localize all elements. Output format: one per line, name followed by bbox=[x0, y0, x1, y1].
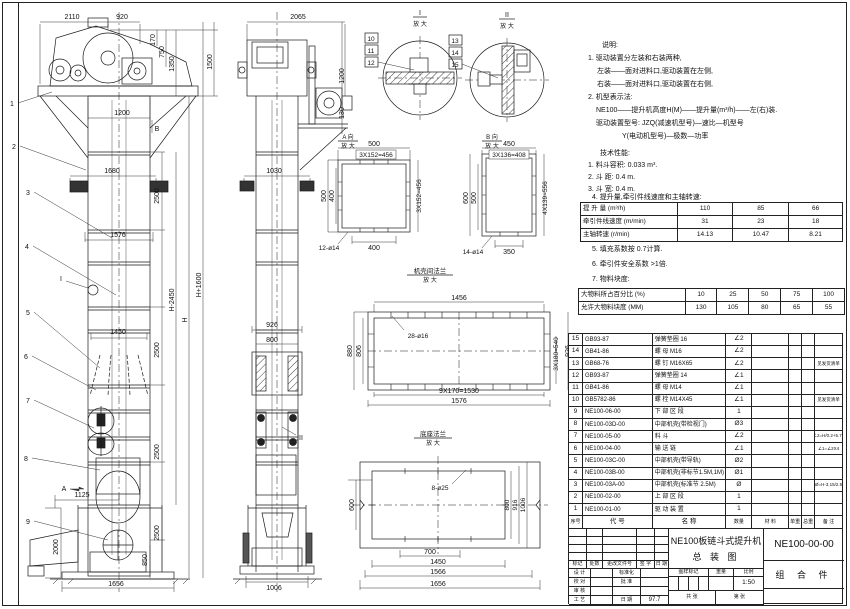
dim-label: 926 bbox=[266, 322, 278, 329]
dim-label: 920 bbox=[116, 14, 128, 21]
stamp-header: 重量 bbox=[709, 569, 734, 577]
note-line: 1. 驱动装置分左装和右装两种, bbox=[588, 55, 682, 63]
scale-cell: 1:50 bbox=[734, 577, 764, 591]
detail-subtitle: 放 大 bbox=[423, 276, 437, 284]
side-dim-lines bbox=[244, 22, 345, 588]
dim-label: 500 bbox=[368, 141, 380, 148]
bom-cell-no: 13 bbox=[569, 358, 583, 370]
perf-row-label: 主轴转速 (r/min) bbox=[581, 229, 678, 242]
role-rows: 设 计 标准化 校 对 批 准 审 核 工 艺 日 期 97.7 bbox=[569, 569, 669, 605]
bom-row: 13 GB68-76 螺 钉 M16X65 ∠2 见发货清单 bbox=[569, 358, 843, 370]
block-cell: 130 bbox=[686, 302, 718, 315]
dim-label: 14-ø14 bbox=[463, 249, 484, 256]
dim-label: 1006 bbox=[520, 497, 527, 512]
bom-cell-total-weight bbox=[802, 395, 815, 407]
role-mid-value bbox=[641, 587, 669, 596]
dim-label: 4X139=556 bbox=[542, 181, 549, 215]
bom-cell-code: GB5782-86 bbox=[583, 395, 653, 407]
bom-cell-code: GB93-87 bbox=[583, 334, 653, 346]
bom-cell-unit-weight bbox=[789, 492, 802, 504]
bom-cell-name: 螺 栓 M14X45 bbox=[653, 395, 727, 407]
rev-header: 更改文件号 bbox=[603, 561, 637, 569]
bom-cell-name: 螺 母 M14 bbox=[653, 383, 727, 395]
bom-cell-code: NE100-04-00 bbox=[583, 443, 653, 455]
dim-label: 400 bbox=[368, 245, 380, 252]
bom-cell-code: NE100-03D-00 bbox=[583, 419, 653, 431]
bom-cell-code: NE100-01-00 bbox=[583, 504, 653, 516]
bom-cell-name: 上 部 区 段 bbox=[653, 492, 727, 504]
dim-label: 1030 bbox=[266, 168, 282, 175]
dim-label: H-2450 bbox=[169, 288, 176, 311]
perf-cell: 85 bbox=[733, 203, 789, 216]
bom-cell-no: 8 bbox=[569, 419, 583, 431]
table-row: 允许大物料块度 (MM) 130 105 80 65 55 bbox=[579, 302, 845, 315]
elevator-drawing: 2110 920 170 750 1350 1500 1200 1680 250… bbox=[0, 0, 575, 609]
perf-cell: 31 bbox=[678, 216, 734, 229]
note-line: Y(电动机型号)—极数—功率 bbox=[622, 133, 708, 141]
role-signature bbox=[591, 587, 613, 596]
detail-subtitle: 放 大 bbox=[341, 142, 355, 150]
leader-number: 11 bbox=[368, 48, 375, 55]
dim-label: 1350 bbox=[169, 56, 176, 72]
bom-cell-unit-weight bbox=[789, 407, 802, 419]
bom-cell-no: 7 bbox=[569, 431, 583, 443]
role-label: 工 艺 bbox=[569, 596, 591, 605]
detail-ref: II bbox=[299, 435, 303, 442]
role-mid-value bbox=[641, 569, 669, 578]
bom-cell-material bbox=[752, 419, 789, 431]
bom-row: 12 GB93-87 弹簧垫圈 14 ∠1 bbox=[569, 370, 843, 382]
leader-number: 7 bbox=[26, 398, 30, 405]
view-marker: B bbox=[155, 126, 160, 133]
bom-cell-code: GB41-86 bbox=[583, 346, 653, 358]
bom-cell-remark bbox=[815, 455, 843, 467]
drive-head bbox=[38, 18, 198, 158]
note-line: 右装——面对进料口,驱动装置在右侧, bbox=[597, 81, 713, 89]
bom-row: 7 NE100-05-00 料 斗 ∠2 ∠2=H/0.2+5.75 bbox=[569, 431, 843, 443]
block-cell: 75 bbox=[781, 289, 813, 302]
bom-cell-qty: Ø2 bbox=[726, 455, 752, 467]
leader-number: 1 bbox=[10, 101, 14, 108]
bom-row: 14 GB41-86 螺 母 M16 ∠2 bbox=[569, 346, 843, 358]
tech-title: 技术性能: bbox=[600, 150, 630, 158]
drawing-title: NE100板链斗式提升机 bbox=[671, 534, 762, 547]
detail-ref: I bbox=[60, 276, 62, 283]
bom-cell-total-weight bbox=[802, 455, 815, 467]
bom-cell-qty: ∠1 bbox=[726, 383, 752, 395]
dim-label: 1576 bbox=[110, 232, 126, 239]
bom-cell-material bbox=[752, 443, 789, 455]
perf-cell: 10.47 bbox=[733, 229, 789, 242]
tech-item: 6. 牵引件安全系数 >1倍. bbox=[592, 261, 668, 269]
tech-item: 7. 物料块度: bbox=[592, 276, 630, 284]
bom-cell-unit-weight bbox=[789, 443, 802, 455]
bom-cell-material bbox=[752, 455, 789, 467]
dim-label: 9X170=1530 bbox=[439, 388, 479, 395]
dim-label: 750 bbox=[159, 46, 166, 58]
perf-cell: 66 bbox=[789, 203, 843, 216]
perf-cell: 18 bbox=[789, 216, 843, 229]
block-cell: 100 bbox=[813, 289, 845, 302]
rev-header: 标记 bbox=[569, 561, 587, 569]
bom-cell-total-weight bbox=[802, 383, 815, 395]
dim-label: 1576 bbox=[451, 398, 467, 405]
dim-label: 2500 bbox=[154, 525, 161, 541]
dim-label: 3X136=408 bbox=[492, 152, 526, 159]
bom-cell-material bbox=[752, 492, 789, 504]
bom-cell-name: 弹簧垫圈 16 bbox=[653, 334, 727, 346]
dim-label: 2500 bbox=[154, 188, 161, 204]
bom-cell-qty: ∠2 bbox=[726, 334, 752, 346]
detail-title: A 向 bbox=[342, 133, 353, 141]
bom-cell-remark: ∠1=∠2X4 bbox=[815, 443, 843, 455]
sheet-count: 共 张 bbox=[669, 591, 716, 605]
bom-cell-name: 螺 钉 M16X65 bbox=[653, 358, 727, 370]
bom-cell-remark bbox=[815, 492, 843, 504]
leader-number: 5 bbox=[26, 310, 30, 317]
bom-cell-code: NE100-03A-00 bbox=[583, 480, 653, 492]
bom-cell-remark bbox=[815, 504, 843, 516]
drawing-sheet: 2110 920 170 750 1350 1500 1200 1680 250… bbox=[0, 0, 850, 609]
role-row: 校 对 批 准 bbox=[569, 578, 669, 587]
block-cell: 50 bbox=[749, 289, 781, 302]
drawing-title-box: NE100板链斗式提升机 总 装 图 bbox=[669, 529, 764, 569]
dim-label: 8-ø25 bbox=[432, 485, 449, 492]
leader-number: 3 bbox=[26, 190, 30, 197]
bom-cell-total-weight bbox=[802, 334, 815, 346]
leader-number: 8 bbox=[24, 456, 28, 463]
bom-cell-name: 弹簧垫圈 14 bbox=[653, 370, 727, 382]
leader-number: 6 bbox=[24, 354, 28, 361]
bom-cell-code: NE100-03C-00 bbox=[583, 455, 653, 467]
bom-cell-name: 中部机壳(带导轨) bbox=[653, 455, 727, 467]
role-mid-label: 日 期 bbox=[613, 596, 641, 605]
tech-item: 3. 斗 宽: 0.4 m. bbox=[588, 186, 635, 194]
dim-label: 2500 bbox=[154, 342, 161, 358]
bom-cell-remark: 见发货清单 bbox=[815, 395, 843, 407]
bom-cell-name: 输 送 链 bbox=[653, 443, 727, 455]
bom-cell-name: 中部机壳(标准节 2.5M) bbox=[653, 480, 727, 492]
bom-cell-total-weight bbox=[802, 346, 815, 358]
front-leader-lines bbox=[18, 92, 116, 540]
leader-number: 12 bbox=[367, 60, 375, 67]
perf-cell: 23 bbox=[733, 216, 789, 229]
bom-cell-code: GB68-76 bbox=[583, 358, 653, 370]
bom-cell-code: NE100-02-00 bbox=[583, 492, 653, 504]
dim-label: 12-ø14 bbox=[319, 245, 340, 252]
note-line: NE100——提升机高度H(M)——提升量(m³/h)——左(右)装. bbox=[596, 107, 777, 115]
dim-label: 800 bbox=[504, 499, 511, 510]
role-mid-value: 97.7 bbox=[641, 596, 669, 605]
block-cell: 10 bbox=[686, 289, 718, 302]
role-signature bbox=[591, 578, 613, 587]
drawing-number: NE100-00-00 bbox=[764, 529, 844, 561]
dim-label: 806 bbox=[356, 345, 363, 357]
bom-cell-qty: 1 bbox=[726, 504, 752, 516]
detail-title: I bbox=[419, 10, 421, 17]
dim-label: 1200 bbox=[114, 110, 130, 117]
sheet-info-row: 共 张 第 张 bbox=[669, 591, 764, 605]
role-signature bbox=[591, 569, 613, 578]
dim-label: 1450 bbox=[110, 329, 126, 336]
bom-cell-total-weight bbox=[802, 468, 815, 480]
dim-label: 700 bbox=[424, 549, 436, 556]
bom-cell-remark: ∠2=H/0.2+5.75 bbox=[815, 431, 843, 443]
table-row: 主轴转速 (r/min) 14.13 10.47 8.21 bbox=[581, 229, 843, 242]
tech-item: 1. 料斗容积: 0.033 m³. bbox=[588, 162, 657, 170]
dim-label: 1125 bbox=[74, 492, 89, 499]
bom-cell-qty: ∠2 bbox=[726, 358, 752, 370]
base-flange-detail bbox=[348, 438, 548, 590]
bom-cell-no: 6 bbox=[569, 443, 583, 455]
bom-cell-unit-weight bbox=[789, 370, 802, 382]
table-row: 牵引件线速度 (m/min) 31 23 18 bbox=[581, 216, 843, 229]
block-cell: 80 bbox=[749, 302, 781, 315]
view-marker: A bbox=[62, 486, 67, 493]
revision-rows bbox=[569, 529, 669, 561]
block-cell: 55 bbox=[813, 302, 845, 315]
bom-row: 3 NE100-03A-00 中部机壳(标准节 2.5M) Ø Ø=H-3.15… bbox=[569, 480, 843, 492]
stamp-header: 比例 bbox=[734, 569, 764, 577]
bom-cell-remark bbox=[815, 419, 843, 431]
bom-table: 15 GB93-87 弹簧垫圈 16 ∠2 14 GB41-86 螺 母 M16… bbox=[568, 333, 843, 516]
dim-label: 1200 bbox=[339, 68, 346, 84]
bom-cell-remark bbox=[815, 346, 843, 358]
block-cell: 65 bbox=[781, 302, 813, 315]
rev-header: 签 字 bbox=[637, 561, 655, 569]
bom-cell-total-weight bbox=[802, 480, 815, 492]
bom-cell-code: NE100-06-00 bbox=[583, 407, 653, 419]
detail-title: B 向 bbox=[486, 133, 498, 141]
block-row-label: 允许大物料块度 (MM) bbox=[579, 302, 686, 315]
bom-cell-material bbox=[752, 358, 789, 370]
bom-cell-qty: ∠1 bbox=[726, 370, 752, 382]
dim-label: 916 bbox=[512, 499, 519, 510]
bom-cell-unit-weight bbox=[789, 395, 802, 407]
dim-label: 500 bbox=[321, 190, 328, 202]
role-label: 设 计 bbox=[569, 569, 591, 578]
bom-cell-name: 下 部 区 段 bbox=[653, 407, 727, 419]
dim-label: 28-ø16 bbox=[408, 333, 429, 340]
bom-cell-name: 中部机壳(非标节1.5M,1M) bbox=[653, 468, 727, 480]
bom-cell-name: 螺 母 M16 bbox=[653, 346, 727, 358]
bom-cell-no: 11 bbox=[569, 383, 583, 395]
bom-cell-unit-weight bbox=[789, 358, 802, 370]
bom-cell-unit-weight bbox=[789, 334, 802, 346]
detail-subtitle: 放 大 bbox=[426, 439, 440, 447]
detail-title: 底座法兰 bbox=[420, 429, 447, 438]
dim-label: 400 bbox=[329, 190, 336, 202]
perf-row-label: 提 升 量 (m³/h) bbox=[581, 203, 678, 216]
bom-cell-name: 中部机壳(带检视门) bbox=[653, 419, 727, 431]
dim-label: 1656 bbox=[430, 581, 446, 588]
bom-cell-material bbox=[752, 407, 789, 419]
bom-cell-material bbox=[752, 395, 789, 407]
leader-number: 2 bbox=[12, 144, 16, 151]
leader-number: 4 bbox=[25, 244, 29, 251]
bom-cell-material bbox=[752, 346, 789, 358]
bom-cell-unit-weight bbox=[789, 455, 802, 467]
dim-label: 1656 bbox=[108, 581, 124, 588]
bom-cell-material bbox=[752, 480, 789, 492]
bom-cell-no: 9 bbox=[569, 407, 583, 419]
dim-label: 1450 bbox=[430, 559, 446, 566]
perf-cell: 8.21 bbox=[789, 229, 843, 242]
dim-label: 2065 bbox=[290, 14, 306, 21]
dim-label: 2110 bbox=[64, 14, 79, 21]
bom-cell-qty: Ø1 bbox=[726, 468, 752, 480]
bom-cell-unit-weight bbox=[789, 480, 802, 492]
table-row: 大物料所占百分比 (%) 10 25 50 75 100 bbox=[579, 289, 845, 302]
dim-label: 2000 bbox=[53, 539, 60, 555]
bom-cell-no: 4 bbox=[569, 468, 583, 480]
bom-row: 8 NE100-03D-00 中部机壳(带检视门) Ø3 bbox=[569, 419, 843, 431]
bom-cell-remark bbox=[815, 383, 843, 395]
bom-cell-code: GB41-86 bbox=[583, 383, 653, 395]
bom-cell-remark: Ø=H-3.15/2.5 bbox=[815, 480, 843, 492]
bom-cell-no: 15 bbox=[569, 334, 583, 346]
stamp-header: 图样标记 bbox=[669, 569, 709, 577]
dim-label: 2500 bbox=[154, 444, 161, 460]
dim-label: 3X152=456 bbox=[359, 152, 393, 159]
dim-label: 1680 bbox=[104, 168, 120, 175]
dim-label: 850 bbox=[142, 554, 149, 566]
role-row: 审 核 bbox=[569, 587, 669, 596]
dim-label: 1500 bbox=[207, 54, 214, 70]
bom-cell-total-weight bbox=[802, 504, 815, 516]
role-mid-label: 标准化 bbox=[613, 569, 641, 578]
block-cell: 25 bbox=[717, 289, 749, 302]
weight-cell bbox=[709, 577, 734, 591]
block-size-table: 大物料所占百分比 (%) 10 25 50 75 100 允许大物料块度 (MM… bbox=[578, 288, 845, 315]
bom-row: 6 NE100-04-00 输 送 链 ∠1 ∠1=∠2X4 bbox=[569, 443, 843, 455]
front-view bbox=[18, 12, 218, 592]
note-line: 2. 机型表示法: bbox=[588, 94, 633, 102]
bom-cell-code: NE100-03B-00 bbox=[583, 468, 653, 480]
dim-label: 130 bbox=[339, 107, 346, 119]
dim-label: 170 bbox=[150, 34, 157, 46]
tech-item: 2. 斗 距: 0.4 m. bbox=[588, 174, 635, 182]
bom-cell-no: 2 bbox=[569, 492, 583, 504]
tension-device bbox=[88, 406, 114, 456]
bom-cell-code: NE100-05-00 bbox=[583, 431, 653, 443]
side-view bbox=[233, 12, 352, 592]
bom-cell-unit-weight bbox=[789, 383, 802, 395]
dim-label: 450 bbox=[503, 141, 515, 148]
dim-label: 600 bbox=[463, 192, 470, 204]
bom-row: 4 NE100-03B-00 中部机壳(非标节1.5M,1M) Ø1 bbox=[569, 468, 843, 480]
detail-circle-1 bbox=[365, 17, 462, 120]
bom-cell-unit-weight bbox=[789, 346, 802, 358]
perf-row-label: 牵引件线速度 (m/min) bbox=[581, 216, 678, 229]
block-cell: 105 bbox=[717, 302, 749, 315]
bom-cell-qty: ∠2 bbox=[726, 346, 752, 358]
bom-cell-qty: ∠1 bbox=[726, 443, 752, 455]
bom-cell-material bbox=[752, 504, 789, 516]
title-block: 标记 处数 更改文件号 签 字 日 期 设 计 标准化 校 对 批 准 审 核 … bbox=[568, 528, 843, 604]
dim-label: 1456 bbox=[451, 295, 467, 302]
leader-number: 15 bbox=[451, 62, 459, 69]
bom-cell-no: 1 bbox=[569, 504, 583, 516]
bom-cell-material bbox=[752, 383, 789, 395]
dim-label: 500 bbox=[471, 192, 478, 204]
bom-cell-remark bbox=[815, 334, 843, 346]
bom-cell-material bbox=[752, 468, 789, 480]
bom-cell-unit-weight bbox=[789, 504, 802, 516]
dim-label: 3X152=456 bbox=[416, 179, 423, 213]
bom-cell-code: GB93-87 bbox=[583, 370, 653, 382]
bom-cell-unit-weight bbox=[789, 468, 802, 480]
drawing-subtitle: 总 装 图 bbox=[692, 550, 739, 563]
bom-cell-material bbox=[752, 334, 789, 346]
rev-header: 处数 bbox=[587, 561, 603, 569]
stamp-header-row: 图样标记 重量 比例 bbox=[669, 569, 764, 577]
bom-row: 1 NE100-01-00 驱 动 装 置 1 bbox=[569, 504, 843, 516]
bom-row: 11 GB41-86 螺 母 M14 ∠1 bbox=[569, 383, 843, 395]
leader-number: 9 bbox=[26, 519, 30, 526]
detail-subtitle: 放 大 bbox=[500, 22, 514, 30]
detail-title: II bbox=[505, 12, 509, 19]
note-line: 左装——面对进料口,驱动装置在左侧, bbox=[597, 68, 713, 76]
role-label: 审 核 bbox=[569, 587, 591, 596]
bom-cell-total-weight bbox=[802, 419, 815, 431]
bom-cell-unit-weight bbox=[789, 431, 802, 443]
bom-row: 5 NE100-03C-00 中部机壳(带导轨) Ø2 bbox=[569, 455, 843, 467]
detail-circle-2 bbox=[449, 19, 549, 122]
bom-row: 9 NE100-06-00 下 部 区 段 1 bbox=[569, 407, 843, 419]
bom-cell-total-weight bbox=[802, 407, 815, 419]
dim-label: 350 bbox=[503, 249, 515, 256]
bom-cell-qty: Ø3 bbox=[726, 419, 752, 431]
stamp-cells-row: 1:50 bbox=[669, 577, 764, 591]
bom-cell-qty: ∠2 bbox=[726, 431, 752, 443]
leader-number: 14 bbox=[451, 50, 459, 57]
notes-title: 说明: bbox=[602, 42, 618, 50]
side-base bbox=[233, 505, 322, 584]
sheet-number: 第 张 bbox=[716, 591, 764, 605]
bom-cell-qty: ∠1 bbox=[726, 395, 752, 407]
bom-cell-remark bbox=[815, 468, 843, 480]
tech-item: 5. 填充系数按 0.7计算. bbox=[592, 246, 662, 254]
performance-table: 提 升 量 (m³/h) 110 85 66 牵引件线速度 (m/min) 31… bbox=[580, 202, 843, 242]
dim-label: 600 bbox=[349, 499, 356, 511]
leader-number: 10 bbox=[367, 36, 375, 43]
perf-cell: 110 bbox=[678, 203, 734, 216]
title-block-blank bbox=[764, 589, 844, 605]
bom-row: 2 NE100-02-00 上 部 区 段 1 bbox=[569, 492, 843, 504]
bom-cell-no: 12 bbox=[569, 370, 583, 382]
bom-cell-total-weight bbox=[802, 431, 815, 443]
block-row-label: 大物料所占百分比 (%) bbox=[579, 289, 686, 302]
revision-header-row: 标记 处数 更改文件号 签 字 日 期 bbox=[569, 561, 669, 569]
perf-cell: 14.13 bbox=[678, 229, 734, 242]
bom-cell-total-weight bbox=[802, 492, 815, 504]
table-row: 提 升 量 (m³/h) 110 85 66 bbox=[581, 203, 843, 216]
leader-number: 13 bbox=[451, 38, 459, 45]
tech-item: 4. 提升量,牵引件线速度和主轴转速: bbox=[592, 194, 702, 202]
bom-cell-remark bbox=[815, 407, 843, 419]
bom-cell-no: 10 bbox=[569, 395, 583, 407]
bom-row: 15 GB93-87 弹簧垫圈 16 ∠2 bbox=[569, 334, 843, 346]
bom-cell-no: 14 bbox=[569, 346, 583, 358]
role-mid-label: 批 准 bbox=[613, 578, 641, 587]
bom-cell-no: 5 bbox=[569, 455, 583, 467]
dim-label: 880 bbox=[347, 345, 354, 357]
bom-cell-qty: 1 bbox=[726, 492, 752, 504]
dim-label: 1006 bbox=[266, 585, 282, 592]
bom-cell-remark bbox=[815, 370, 843, 382]
bom-cell-qty: 1 bbox=[726, 407, 752, 419]
